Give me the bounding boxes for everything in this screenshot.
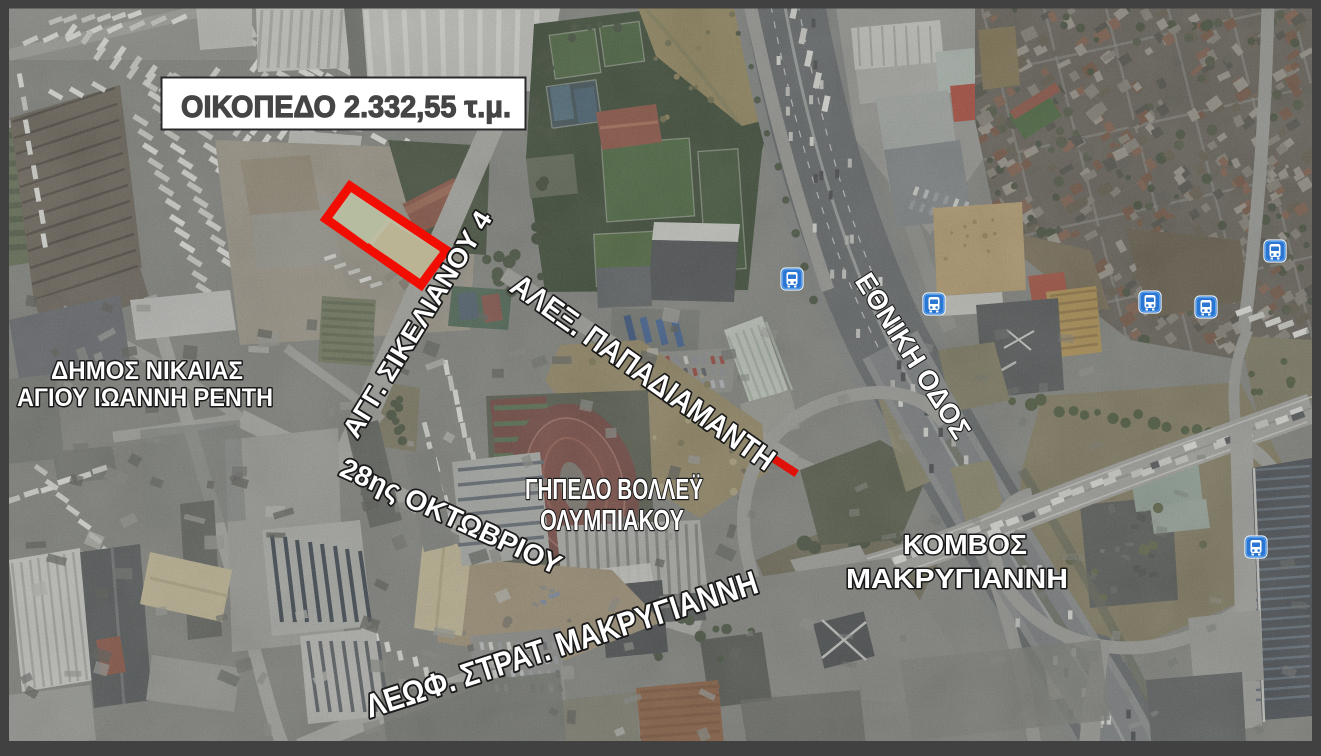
svg-text:ΜΑΚΡΥΓΙΑΝΝΗ: ΜΑΚΡΥΓΙΑΝΝΗ	[846, 563, 1068, 594]
svg-text:ΑΓΙΟΥ ΙΩΑΝΝΗ ΡΕΝΤΗ: ΑΓΙΟΥ ΙΩΑΝΝΗ ΡΕΝΤΗ	[17, 384, 273, 412]
svg-text:ΟΙΚΟΠΕΔΟ 2.332,55 τ.μ.: ΟΙΚΟΠΕΔΟ 2.332,55 τ.μ.	[181, 89, 511, 124]
svg-text:ΚΟΜΒΟΣ: ΚΟΜΒΟΣ	[903, 529, 1027, 560]
svg-text:ΓΗΠΕΔΟ ΒΟΛΛΕΫ: ΓΗΠΕΔΟ ΒΟΛΛΕΫ	[525, 473, 703, 506]
svg-text:ΔΗΜΟΣ ΝΙΚΑΙΑΣ: ΔΗΜΟΣ ΝΙΚΑΙΑΣ	[51, 357, 243, 385]
svg-text:ΟΛΥΜΠΙΑΚΟΥ: ΟΛΥΜΠΙΑΚΟΥ	[540, 505, 684, 537]
